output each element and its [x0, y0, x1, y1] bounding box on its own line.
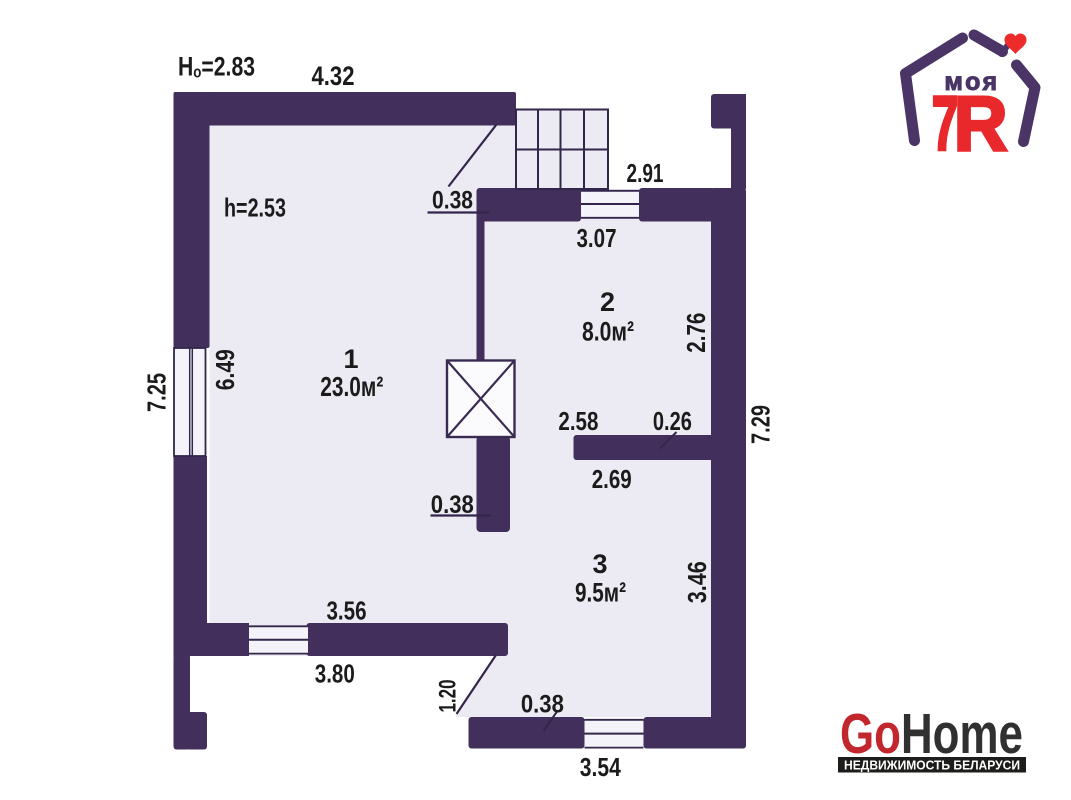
svg-text:3: 3 [592, 549, 607, 579]
svg-text:0.38: 0.38 [432, 187, 473, 215]
svg-text:0.38: 0.38 [431, 491, 474, 519]
svg-text:8.0м²: 8.0м² [582, 317, 634, 347]
svg-text:0.26: 0.26 [653, 406, 692, 436]
svg-text:1: 1 [343, 344, 358, 374]
svg-text:3.46: 3.46 [682, 561, 712, 603]
svg-text:Ho=2.83: Ho=2.83 [178, 52, 255, 82]
svg-text:3.56: 3.56 [327, 596, 367, 626]
svg-text:7.29: 7.29 [746, 405, 776, 444]
svg-text:Я: Я [954, 81, 1008, 167]
svg-text:h=2.53: h=2.53 [224, 193, 286, 223]
svg-text:7.25: 7.25 [142, 373, 172, 412]
svg-text:6.49: 6.49 [210, 349, 240, 390]
svg-text:НЕДВИЖИМОСТЬ БЕЛАРУСИ: НЕДВИЖИМОСТЬ БЕЛАРУСИ [844, 759, 1020, 773]
svg-text:3.80: 3.80 [315, 659, 355, 689]
svg-text:2.58: 2.58 [558, 406, 598, 436]
svg-text:3.07: 3.07 [577, 223, 617, 253]
svg-text:2.91: 2.91 [627, 158, 664, 188]
svg-text:0.38: 0.38 [521, 691, 564, 719]
svg-text:23.0м²: 23.0м² [320, 371, 383, 402]
svg-text:2: 2 [600, 287, 615, 317]
svg-text:9.5м²: 9.5м² [575, 578, 626, 608]
svg-text:GoHome: GoHome [840, 701, 1023, 765]
svg-text:4.32: 4.32 [312, 61, 355, 91]
svg-text:1.20: 1.20 [434, 680, 461, 713]
svg-text:3.54: 3.54 [580, 752, 621, 782]
svg-text:2.69: 2.69 [592, 464, 632, 494]
svg-text:2.76: 2.76 [681, 313, 711, 353]
